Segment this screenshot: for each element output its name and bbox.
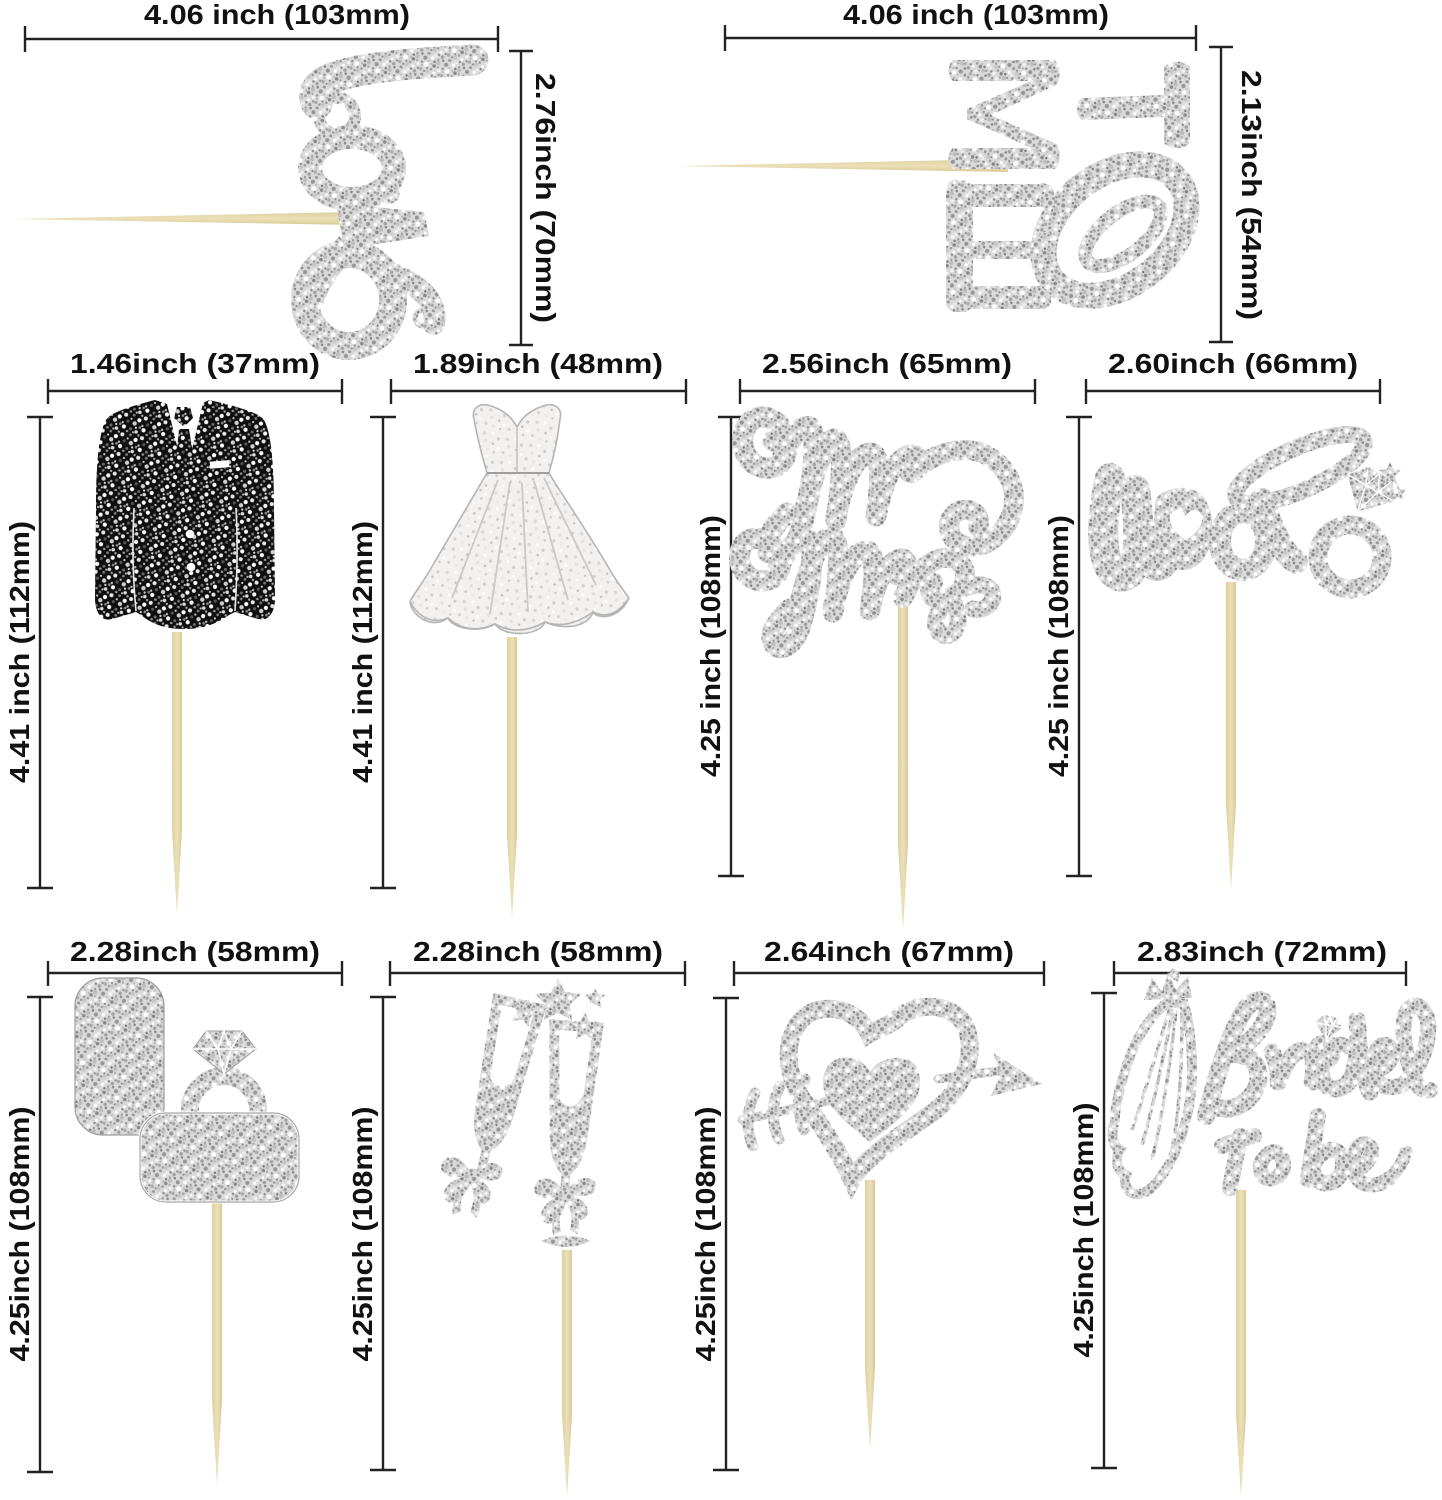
svg-text:4.41 inch (112mm): 4.41 inch (112mm) — [347, 521, 378, 783]
svg-text:4.25inch (108mm): 4.25inch (108mm) — [347, 1107, 378, 1362]
svg-text:2.76inch (70mm): 2.76inch (70mm) — [530, 73, 561, 323]
svg-text:1.46inch (37mm): 1.46inch (37mm) — [70, 348, 320, 379]
svg-text:4.06 inch (103mm): 4.06 inch (103mm) — [843, 0, 1109, 30]
svg-text:2.60inch (66mm): 2.60inch (66mm) — [1108, 348, 1358, 379]
svg-text:2.64inch (67mm): 2.64inch (67mm) — [764, 936, 1014, 967]
svg-text:1.89inch (48mm): 1.89inch (48mm) — [413, 348, 663, 379]
svg-text:4.06 inch (103mm): 4.06 inch (103mm) — [144, 0, 410, 30]
svg-text:2.13inch (54mm): 2.13inch (54mm) — [1236, 70, 1267, 320]
svg-text:2.28inch (58mm): 2.28inch (58mm) — [413, 936, 663, 967]
svg-text:4.25inch (108mm): 4.25inch (108mm) — [4, 1107, 35, 1362]
svg-text:4.25inch (108mm): 4.25inch (108mm) — [690, 1107, 721, 1362]
svg-text:4.41 inch (112mm): 4.41 inch (112mm) — [4, 521, 35, 783]
svg-text:4.25 inch (108mm): 4.25 inch (108mm) — [695, 515, 726, 777]
svg-text:2.28inch (58mm): 2.28inch (58mm) — [70, 936, 320, 967]
svg-text:4.25inch (108mm): 4.25inch (108mm) — [1068, 1103, 1099, 1358]
svg-text:2.83inch (72mm): 2.83inch (72mm) — [1137, 936, 1387, 967]
svg-text:2.56inch (65mm): 2.56inch (65mm) — [762, 348, 1012, 379]
svg-text:4.25 inch (108mm): 4.25 inch (108mm) — [1043, 515, 1074, 777]
